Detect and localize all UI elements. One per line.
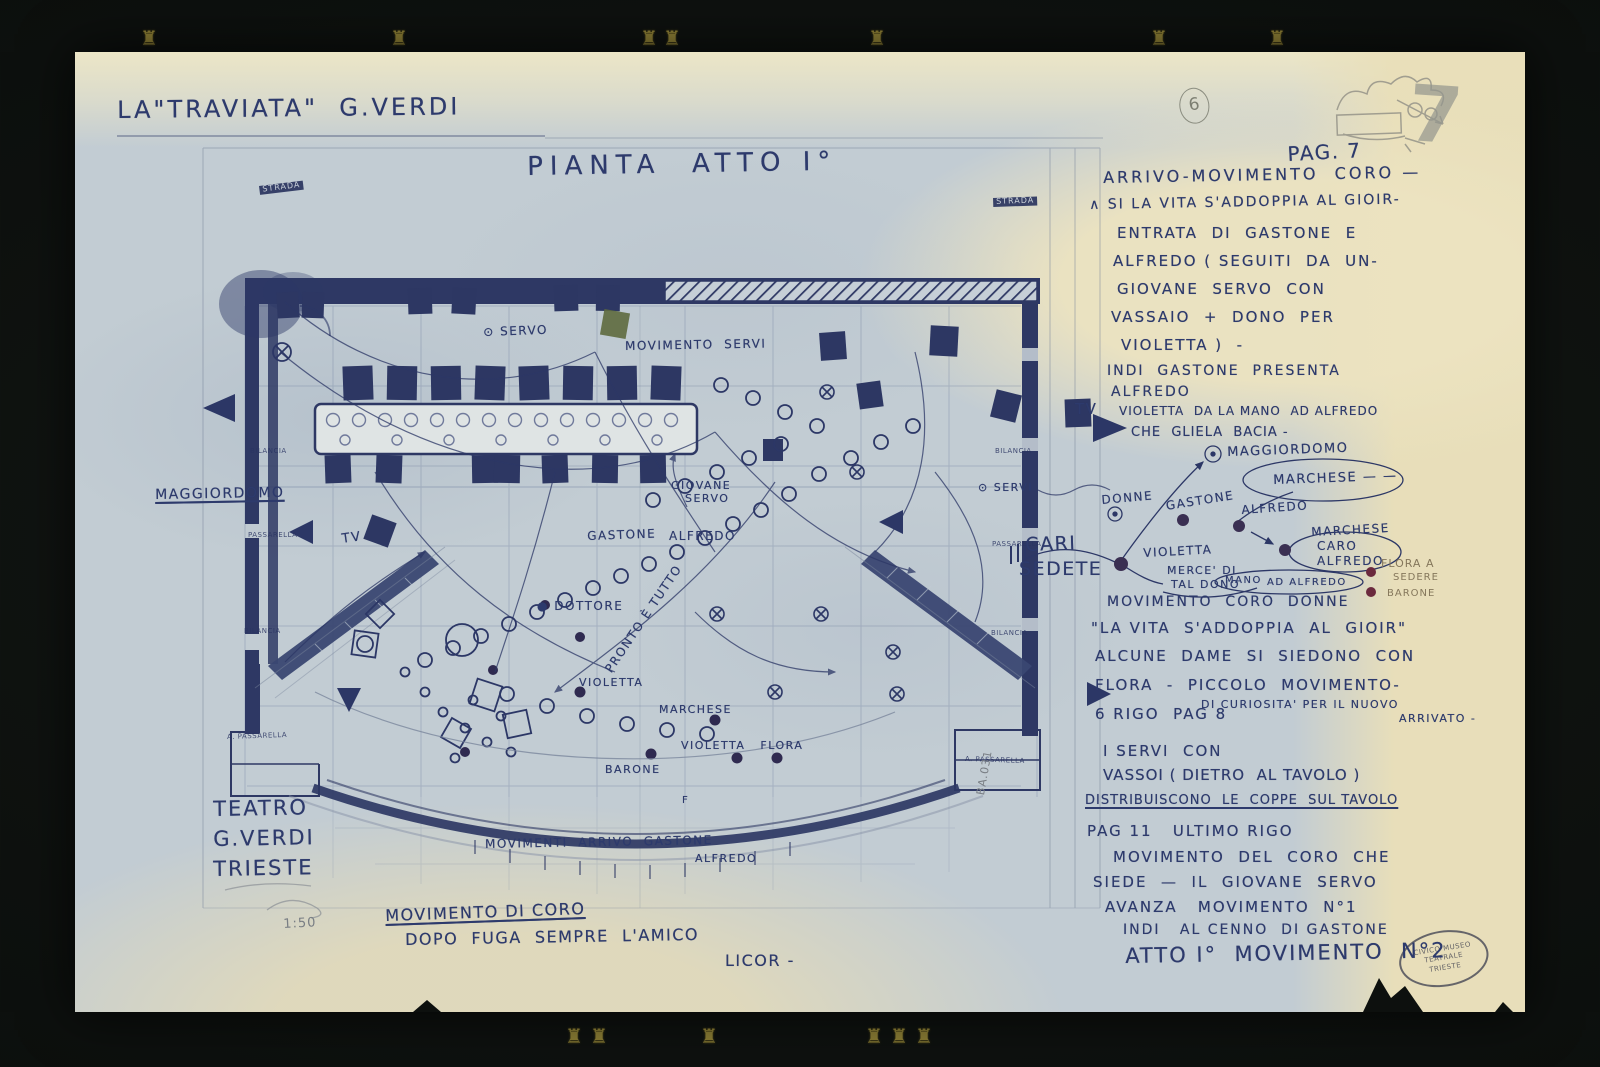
note-entrata: ENTRATA DI GASTONE E bbox=[1117, 226, 1357, 242]
passarella-left-1: PASSARELLA bbox=[248, 532, 297, 539]
cluster-gastone: GASTONE bbox=[1165, 489, 1235, 512]
note-che-gliela: CHE GLIELA BACIA - bbox=[1131, 426, 1289, 440]
marchese-label: MARCHESE bbox=[659, 704, 732, 716]
note-arrivo: ARRIVO-MOVIMENTO CORO — bbox=[1103, 164, 1421, 186]
pencil-page-number: 7 bbox=[1405, 74, 1465, 159]
bilancia-left-1: BILANCIA bbox=[250, 448, 287, 455]
note-alfredo2: ALFREDO bbox=[1111, 385, 1191, 400]
backdrop-crown-mark: ♜ bbox=[865, 1024, 883, 1048]
backdrop-crown-mark: ♜ bbox=[1150, 26, 1168, 50]
cluster-flora-a: FLORA A bbox=[1381, 558, 1434, 570]
note-violetta-par: VIOLETTA ) - bbox=[1121, 338, 1244, 354]
strada-right-tag: STRADA bbox=[993, 196, 1037, 207]
scanned-stage-plan-photo: { "header": { "title": "LA\"TRAVIATA\" G… bbox=[0, 0, 1600, 1067]
cluster-caro-alfredo: ALFREDO bbox=[1317, 555, 1384, 568]
pronto-e-tutto-label: PRONTO È TUTTO bbox=[603, 563, 684, 675]
note-alcune-dame: ALCUNE DAME SI SIEDONO CON bbox=[1095, 649, 1415, 665]
pag-7-note: PAG. 7 bbox=[1287, 140, 1362, 165]
strada-left-tag: STRADA bbox=[259, 181, 304, 196]
plan-title: PIANTA ATTO I° bbox=[527, 149, 838, 182]
gastone-label: GASTONE bbox=[587, 528, 656, 543]
note-alfredo-seguiti: ALFREDO ( SEGUITI DA UN- bbox=[1113, 254, 1379, 270]
main-title: LA"TRAVIATA" G.VERDI bbox=[117, 94, 460, 123]
cluster-maggiordomo: MAGGIORDOMO bbox=[1227, 442, 1349, 460]
backdrop-crown-mark: ♜ bbox=[565, 1024, 583, 1048]
giovane-servo-label-1: GIOVANE bbox=[671, 480, 731, 492]
note-vassoi: VASSOI ( DIETRO AL TAVOLO ) bbox=[1103, 768, 1360, 784]
maggiordomo-left-label: MAGGIORDOMO bbox=[155, 486, 285, 503]
backdrop-crown-mark: ♜ bbox=[390, 26, 408, 50]
cluster-caro: CARO bbox=[1317, 540, 1357, 553]
dottore-label: ● DOTTORE bbox=[537, 600, 623, 613]
note-pag-11: PAG 11 ULTIMO RIGO bbox=[1087, 824, 1294, 840]
backdrop-crown-mark: ♜ bbox=[1268, 26, 1286, 50]
note-atto-1-mov-2: ATTO I° MOVIMENTO N°2 bbox=[1125, 939, 1447, 967]
cluster-barone: BARONE bbox=[1387, 589, 1435, 600]
note-indi-gastone: INDI GASTONE PRESENTA bbox=[1107, 364, 1341, 379]
note-avanza: AVANZA MOVIMENTO N°1 bbox=[1105, 900, 1358, 916]
theater-name-line3: TRIESTE bbox=[213, 856, 314, 880]
backdrop-crown-mark: ♜ bbox=[700, 1024, 718, 1048]
note-giovane-servo: GIOVANE SERVO CON bbox=[1117, 282, 1326, 298]
backdrop-crown-mark: ♜ bbox=[140, 26, 158, 50]
note-siede: SIEDE — IL GIOVANE SERVO bbox=[1093, 875, 1378, 891]
cluster-sedere: SEDERE bbox=[1393, 573, 1439, 584]
note-i-servi: I SERVI CON bbox=[1103, 744, 1223, 760]
backdrop-crown-mark: ♜ bbox=[640, 26, 658, 50]
passarella-right-2: A. PASSARELLA bbox=[965, 756, 1025, 765]
cluster-marchese2: MARCHESE bbox=[1311, 522, 1390, 539]
backdrop-crown-mark: ♜ bbox=[890, 1024, 908, 1048]
note-violetta-mano: VIOLETTA DA LA MANO AD ALFREDO bbox=[1119, 405, 1378, 418]
sheet-number: 6 bbox=[1188, 96, 1201, 115]
note-di-curiosita: DI CURIOSITA' PER IL NUOVO bbox=[1201, 699, 1399, 711]
bilancia-right-1: BILANCIA bbox=[995, 448, 1032, 455]
cluster-marchese-oval: MARCHESE — — bbox=[1273, 470, 1398, 488]
cluster-ad-alfredo: AD ALFREDO bbox=[1267, 578, 1347, 589]
dopo-fuga-label: DOPO FUGA SEMPRE L'AMICO bbox=[405, 927, 699, 949]
annotation-layer: LA"TRAVIATA" G.VERDI PIANTA ATTO I° TEAT… bbox=[75, 52, 1525, 1012]
giovane-servo-label-2: SERVO bbox=[685, 493, 729, 505]
licor-label: LICOR - bbox=[725, 953, 795, 970]
servo-label: ⊙ SERVO bbox=[483, 324, 548, 339]
movimenti-arrivo-label-2: ALFREDO bbox=[695, 853, 757, 865]
f-mark: F bbox=[682, 796, 689, 807]
theater-name-line2: G.VERDI bbox=[213, 826, 315, 850]
passarella-left-2: A. PASSARELLA bbox=[227, 732, 287, 741]
note-arrivato: ARRIVATO - bbox=[1399, 713, 1476, 725]
cluster-donne: DONNE bbox=[1101, 489, 1154, 506]
note-la-vita: "LA VITA S'ADDOPPIA AL GIOIR" bbox=[1091, 621, 1407, 637]
barone-label: BARONE bbox=[605, 764, 661, 776]
backdrop-crown-mark: ♜ bbox=[868, 26, 886, 50]
violetta-flora-label: VIOLETTA FLORA bbox=[681, 740, 803, 752]
alfredo-label: ALFREDO bbox=[669, 530, 736, 543]
cluster-violetta: VIOLETTA bbox=[1143, 543, 1213, 559]
sheet-number-circled: 6 bbox=[1177, 86, 1212, 126]
scale-label: 1:50 bbox=[283, 916, 317, 931]
cluster-alfredo: ALFREDO bbox=[1241, 499, 1309, 516]
servi-right-label: ⊙ SERVI bbox=[978, 482, 1033, 494]
note-distribuiscono: DISTRIBUISCONO LE COPPE SUL TAVOLO bbox=[1085, 794, 1398, 808]
violetta-label: VIOLETTA bbox=[579, 677, 643, 689]
note-6-rigo: 6 RIGO PAG 8 bbox=[1095, 707, 1227, 723]
note-mov-coro-donne: MOVIMENTO CORO DONNE bbox=[1107, 595, 1349, 610]
movimento-di-coro-label: MOVIMENTO DI CORO bbox=[385, 901, 586, 925]
cluster-mano: MANO bbox=[1225, 576, 1262, 587]
cluster-sedete: SEDETE bbox=[1019, 560, 1102, 580]
backdrop-crown-mark: ♜ bbox=[663, 26, 681, 50]
note-flora-piccolo: FLORA - PICCOLO MOVIMENTO- bbox=[1095, 678, 1401, 694]
note-indi-al-cenno: INDI AL CENNO DI GASTONE bbox=[1123, 923, 1389, 938]
note-vassaio: VASSAIO + DONO PER bbox=[1111, 310, 1335, 326]
movimenti-arrivo-label-1: MOVIMENTI ARRIVO GASTONE bbox=[485, 834, 713, 851]
note-si-la-vita: ∧ SI LA VITA S'ADDOPPIA AL GIOIR- bbox=[1089, 193, 1401, 213]
backdrop-crown-mark: ♜ bbox=[915, 1024, 933, 1048]
blueprint-sheet: LA"TRAVIATA" G.VERDI PIANTA ATTO I° TEAT… bbox=[75, 52, 1525, 1012]
note-mov-del-coro: MOVIMENTO DEL CORO CHE bbox=[1113, 850, 1391, 866]
tv-left-label: TV bbox=[341, 530, 363, 546]
cluster-cari: CARI bbox=[1025, 534, 1077, 556]
tv-right-label: TV bbox=[1075, 402, 1097, 418]
backdrop-crown-mark: ♜ bbox=[590, 1024, 608, 1048]
bilancia-right-2: BILANCIA bbox=[991, 630, 1028, 637]
movimento-servi-label: MOVIMENTO SERVI bbox=[625, 338, 766, 353]
theater-name-line1: TEATRO bbox=[213, 796, 308, 820]
bilancia-left-2: BILANCIA bbox=[244, 628, 281, 635]
